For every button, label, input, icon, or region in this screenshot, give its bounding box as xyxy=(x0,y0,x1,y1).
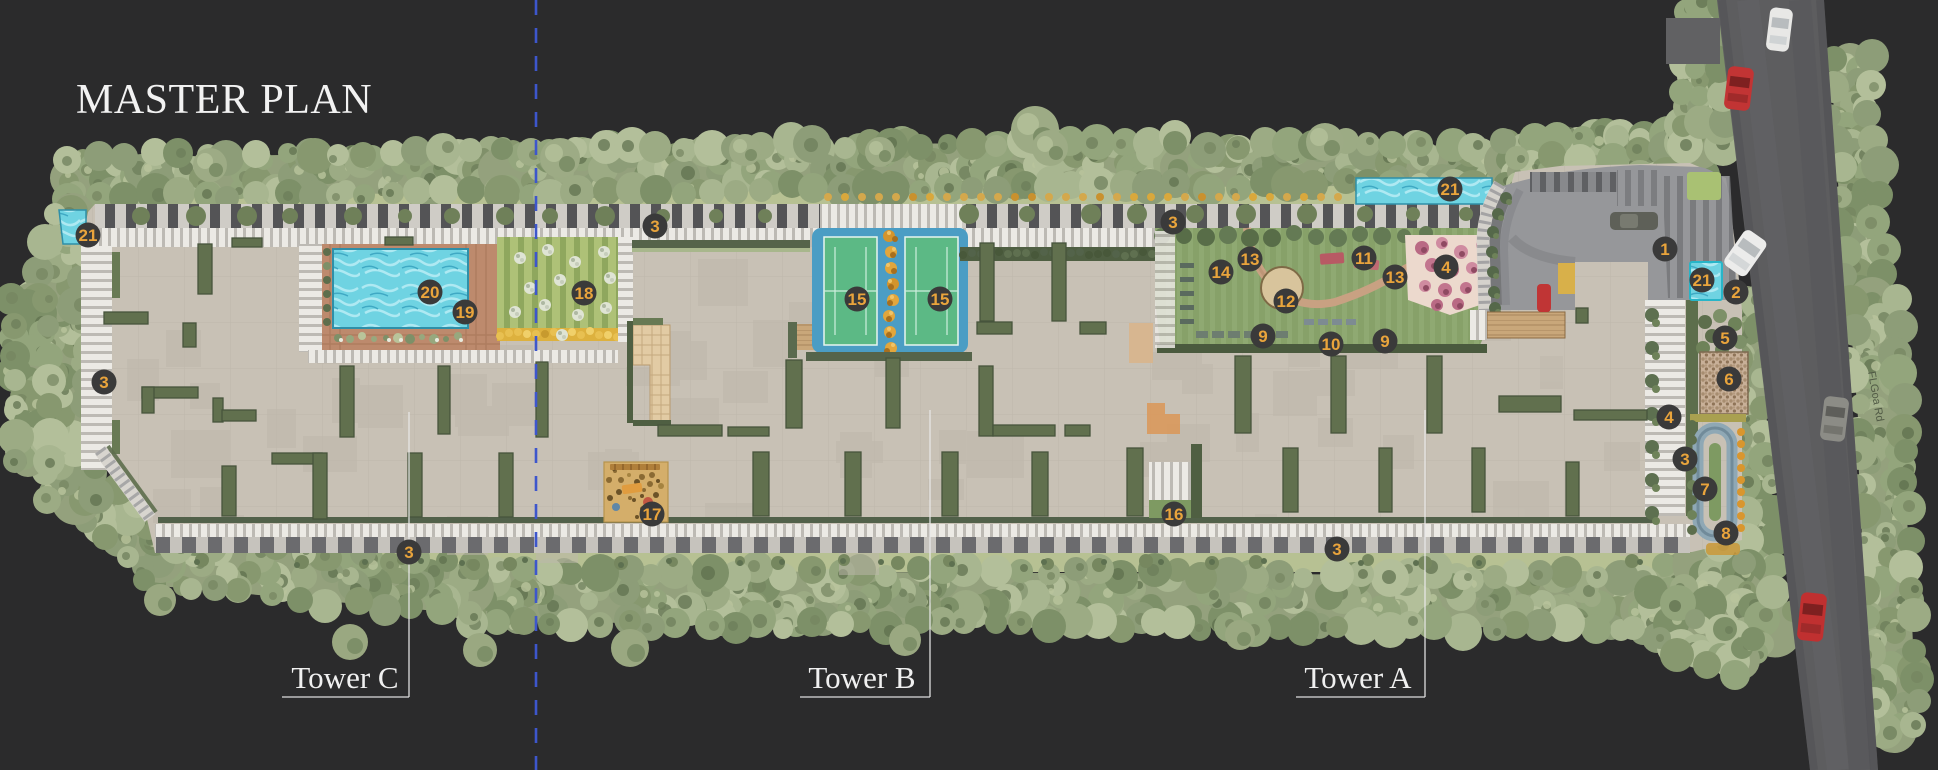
svg-text:4: 4 xyxy=(1441,258,1451,277)
svg-text:8: 8 xyxy=(1721,524,1730,543)
svg-text:17: 17 xyxy=(643,505,662,524)
svg-text:21: 21 xyxy=(1693,271,1712,290)
svg-text:21: 21 xyxy=(1441,180,1460,199)
svg-text:15: 15 xyxy=(848,290,867,309)
svg-text:3: 3 xyxy=(99,373,108,392)
svg-text:3: 3 xyxy=(1332,540,1341,559)
svg-text:3: 3 xyxy=(650,217,659,236)
svg-text:7: 7 xyxy=(1700,480,1709,499)
svg-text:18: 18 xyxy=(575,284,594,303)
svg-text:20: 20 xyxy=(421,283,440,302)
svg-text:Tower A: Tower A xyxy=(1304,660,1412,695)
svg-text:11: 11 xyxy=(1355,249,1373,268)
svg-text:10: 10 xyxy=(1322,335,1341,354)
svg-text:MASTER PLAN: MASTER PLAN xyxy=(76,77,372,123)
svg-text:3: 3 xyxy=(404,543,413,562)
svg-text:15: 15 xyxy=(931,290,950,309)
svg-text:3: 3 xyxy=(1168,213,1177,232)
svg-text:16: 16 xyxy=(1165,505,1184,524)
svg-text:13: 13 xyxy=(1386,268,1405,287)
svg-text:3: 3 xyxy=(1680,450,1689,469)
svg-text:6: 6 xyxy=(1724,370,1733,389)
svg-text:14: 14 xyxy=(1212,263,1231,282)
svg-text:12: 12 xyxy=(1277,292,1296,311)
svg-text:9: 9 xyxy=(1258,327,1267,346)
svg-text:1: 1 xyxy=(1660,240,1669,259)
svg-text:5: 5 xyxy=(1720,329,1729,348)
svg-text:9: 9 xyxy=(1380,332,1389,351)
svg-text:19: 19 xyxy=(456,303,475,322)
svg-text:21: 21 xyxy=(79,226,98,245)
svg-text:4: 4 xyxy=(1664,408,1674,427)
svg-text:2: 2 xyxy=(1731,283,1740,302)
svg-text:Tower B: Tower B xyxy=(808,660,915,695)
svg-text:Tower C: Tower C xyxy=(291,660,398,695)
svg-text:13: 13 xyxy=(1241,250,1260,269)
